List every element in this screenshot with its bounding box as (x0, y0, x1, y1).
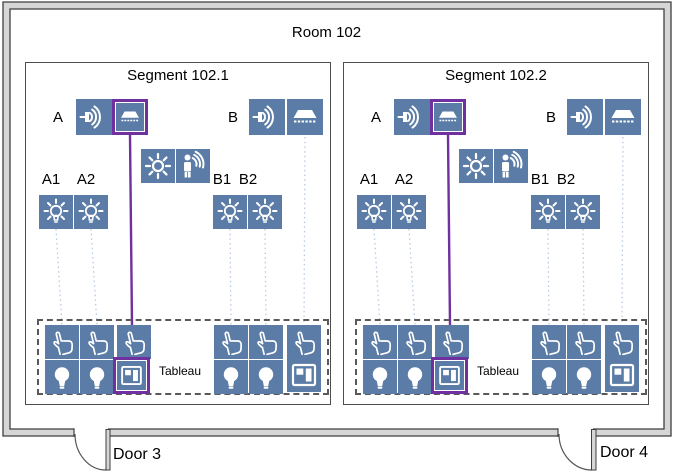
bulb-icon (214, 360, 248, 394)
wire-b1 (230, 229, 231, 325)
push-button-icon (45, 325, 79, 359)
shining-lamp-icon (39, 195, 73, 229)
shining-lamp-icon (392, 195, 426, 229)
sounder-icon (249, 99, 285, 135)
shining-lamp-icon (566, 195, 600, 229)
window-button-highlight-frame (431, 357, 468, 394)
shining-lamp-icon (531, 195, 565, 229)
group-b-label: B (221, 109, 245, 127)
bulb-icon (45, 360, 79, 394)
sounder-icon (394, 99, 430, 135)
wire-a-luminaire-highlight (448, 135, 450, 325)
luminaire-a-highlight-frame (112, 99, 148, 135)
door3-swing-arc (75, 434, 106, 470)
sounder-icon (567, 99, 603, 135)
push-button-icon (567, 325, 601, 359)
door4-leaf (592, 430, 597, 471)
wire-a1 (56, 229, 62, 325)
floor-plan-diagram: Room 102 Segment 102.1 A B A1 A2 B1 (0, 0, 673, 476)
lamp-b1-label: B1 (528, 171, 552, 189)
wire-b2 (583, 229, 584, 325)
window-panes-icon (435, 361, 464, 390)
brightness-sensor-icon (459, 149, 493, 183)
shining-lamp-icon (248, 195, 282, 229)
lamp-a2-label: A2 (74, 171, 98, 189)
segment-title: Segment 102.1 (26, 67, 330, 84)
ceiling-luminaire-icon (116, 103, 144, 131)
presence-detector-icon (494, 149, 528, 183)
segment-102-1: Segment 102.1 A B A1 A2 B1 B2 Tableau (25, 62, 331, 405)
bulb-icon (398, 360, 432, 394)
wire-b-luminaire (304, 137, 305, 325)
wire-a1 (374, 229, 380, 325)
lamp-b2-label: B2 (554, 171, 578, 189)
door3-label: Door 3 (113, 446, 161, 464)
ceiling-luminaire-icon (287, 99, 323, 135)
shining-lamp-icon (74, 195, 108, 229)
push-button-icon (249, 325, 283, 359)
window-button-highlight-frame (113, 357, 150, 394)
sounder-icon (76, 99, 112, 135)
push-button-icon (605, 325, 639, 359)
push-button-icon (80, 325, 114, 359)
luminaire-a-highlight-frame (430, 99, 466, 135)
window-panes-icon (287, 358, 321, 392)
group-b-label: B (539, 109, 563, 127)
bulb-icon (532, 360, 566, 394)
door3-leaf (106, 430, 110, 471)
wire-b2 (265, 229, 266, 325)
shining-lamp-icon (213, 195, 247, 229)
ceiling-luminaire-icon (434, 103, 462, 131)
door4-label: Door 4 (600, 444, 648, 462)
group-a-label: A (364, 109, 388, 127)
push-button-icon (398, 325, 432, 359)
push-button-icon (117, 325, 151, 359)
wire-a-luminaire-highlight (130, 135, 132, 325)
room-title: Room 102 (0, 24, 653, 41)
wire-b-luminaire (622, 137, 623, 325)
wire-a2 (409, 229, 415, 325)
wire-a2 (91, 229, 97, 325)
push-button-icon (435, 325, 469, 359)
wire-b1 (548, 229, 549, 325)
window-panes-icon (605, 358, 639, 392)
segment-title: Segment 102.2 (344, 67, 648, 84)
group-a-label: A (46, 109, 70, 127)
door3-opening (74, 427, 108, 437)
lamp-b2-label: B2 (236, 171, 260, 189)
tableau-label: Tableau (468, 364, 528, 378)
lamp-a1-label: A1 (39, 171, 63, 189)
lamp-a2-label: A2 (392, 171, 416, 189)
push-button-icon (214, 325, 248, 359)
door4-swing-arc (559, 434, 592, 470)
tableau-label: Tableau (150, 364, 210, 378)
brightness-sensor-icon (141, 149, 175, 183)
bulb-icon (80, 360, 114, 394)
bulb-icon (567, 360, 601, 394)
lamp-b1-label: B1 (210, 171, 234, 189)
presence-detector-icon (176, 149, 210, 183)
lamp-a1-label: A1 (357, 171, 381, 189)
bulb-icon (249, 360, 283, 394)
segment-102-2: Segment 102.2 A B A1 A2 B1 B2 Tableau (343, 62, 649, 405)
push-button-icon (363, 325, 397, 359)
push-button-icon (532, 325, 566, 359)
ceiling-luminaire-icon (605, 99, 641, 135)
push-button-icon (287, 325, 321, 359)
bulb-icon (363, 360, 397, 394)
shining-lamp-icon (357, 195, 391, 229)
door4-opening (558, 427, 593, 437)
window-panes-icon (117, 361, 146, 390)
